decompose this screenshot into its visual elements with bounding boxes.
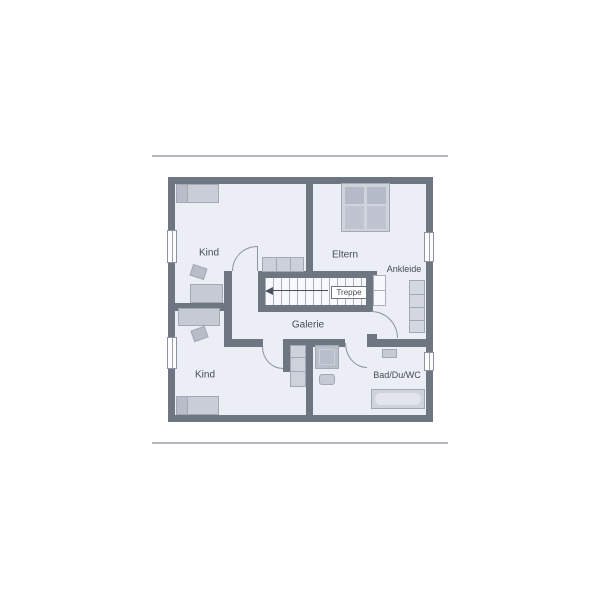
room-label-kind-top: Kind bbox=[199, 248, 219, 259]
window-kind-top bbox=[167, 230, 177, 263]
desk-kind-bottom bbox=[178, 308, 220, 326]
stair-label-box: Treppe bbox=[331, 286, 367, 299]
bed-pillow bbox=[367, 187, 386, 204]
room-label-eltern: Eltern bbox=[332, 250, 358, 261]
room-label-bad: Bad/Du/WC bbox=[373, 370, 421, 380]
bed-eltern bbox=[341, 183, 390, 232]
window-pane bbox=[172, 338, 173, 368]
wall-bath-top-right bbox=[367, 339, 427, 347]
room-label-treppe: Treppe bbox=[336, 288, 361, 297]
bathtub-bad bbox=[371, 389, 425, 409]
wardrobe-ankleide bbox=[409, 280, 425, 333]
closet-divider bbox=[291, 371, 305, 372]
bed-mattress bbox=[367, 206, 386, 229]
window-pane bbox=[172, 231, 173, 262]
top-divider-rule bbox=[152, 155, 448, 157]
shower-bad bbox=[315, 345, 339, 369]
wall-stair-bottom bbox=[258, 305, 372, 312]
wardrobe-divider bbox=[410, 320, 424, 321]
bed-pillow bbox=[177, 185, 188, 202]
wardrobe-divider bbox=[410, 307, 424, 308]
stair-winders bbox=[373, 275, 386, 306]
stair-direction-line bbox=[272, 290, 328, 291]
sink-bad bbox=[382, 349, 397, 358]
wardrobe-divider bbox=[276, 258, 277, 271]
closet-divider bbox=[291, 357, 305, 358]
wardrobe-divider bbox=[410, 294, 424, 295]
window-pane bbox=[429, 353, 430, 370]
window-pane bbox=[429, 233, 430, 261]
window-bad bbox=[424, 352, 434, 371]
bed-kind-bottom bbox=[176, 396, 219, 415]
window-eltern bbox=[424, 232, 434, 262]
wardrobe-divider bbox=[290, 258, 291, 271]
bathtub-basin bbox=[375, 393, 421, 405]
stair-winder-divider bbox=[374, 290, 385, 291]
closet-hall bbox=[290, 345, 306, 387]
wall-galerie-left bbox=[224, 271, 232, 347]
bed-kind-top bbox=[176, 184, 219, 203]
bed-pillow bbox=[177, 397, 188, 414]
wall-galerie-bottom-left bbox=[224, 339, 263, 347]
toilet-bad bbox=[319, 374, 335, 385]
room-label-ankleide: Ankleide bbox=[387, 264, 422, 274]
wardrobe-kind-top bbox=[262, 257, 304, 272]
bed-mattress bbox=[345, 206, 364, 229]
door-leaf-kind-top bbox=[257, 246, 258, 271]
desk-kind-top bbox=[190, 284, 223, 303]
wall-bath-left-divider bbox=[306, 345, 313, 417]
bed-pillow bbox=[345, 187, 364, 204]
floor-plan-page: Treppe Kind Eltern Ankleid bbox=[0, 0, 600, 600]
wall-kind-eltern-divider bbox=[306, 181, 313, 277]
stair-direction-arrow-icon bbox=[265, 287, 273, 295]
room-label-kind-bottom: Kind bbox=[195, 370, 215, 381]
shower-tray bbox=[319, 349, 335, 365]
wall-stair-top bbox=[258, 271, 377, 278]
window-kind-bottom bbox=[167, 337, 177, 369]
bottom-divider-rule bbox=[152, 442, 448, 444]
room-label-galerie: Galerie bbox=[292, 320, 324, 331]
